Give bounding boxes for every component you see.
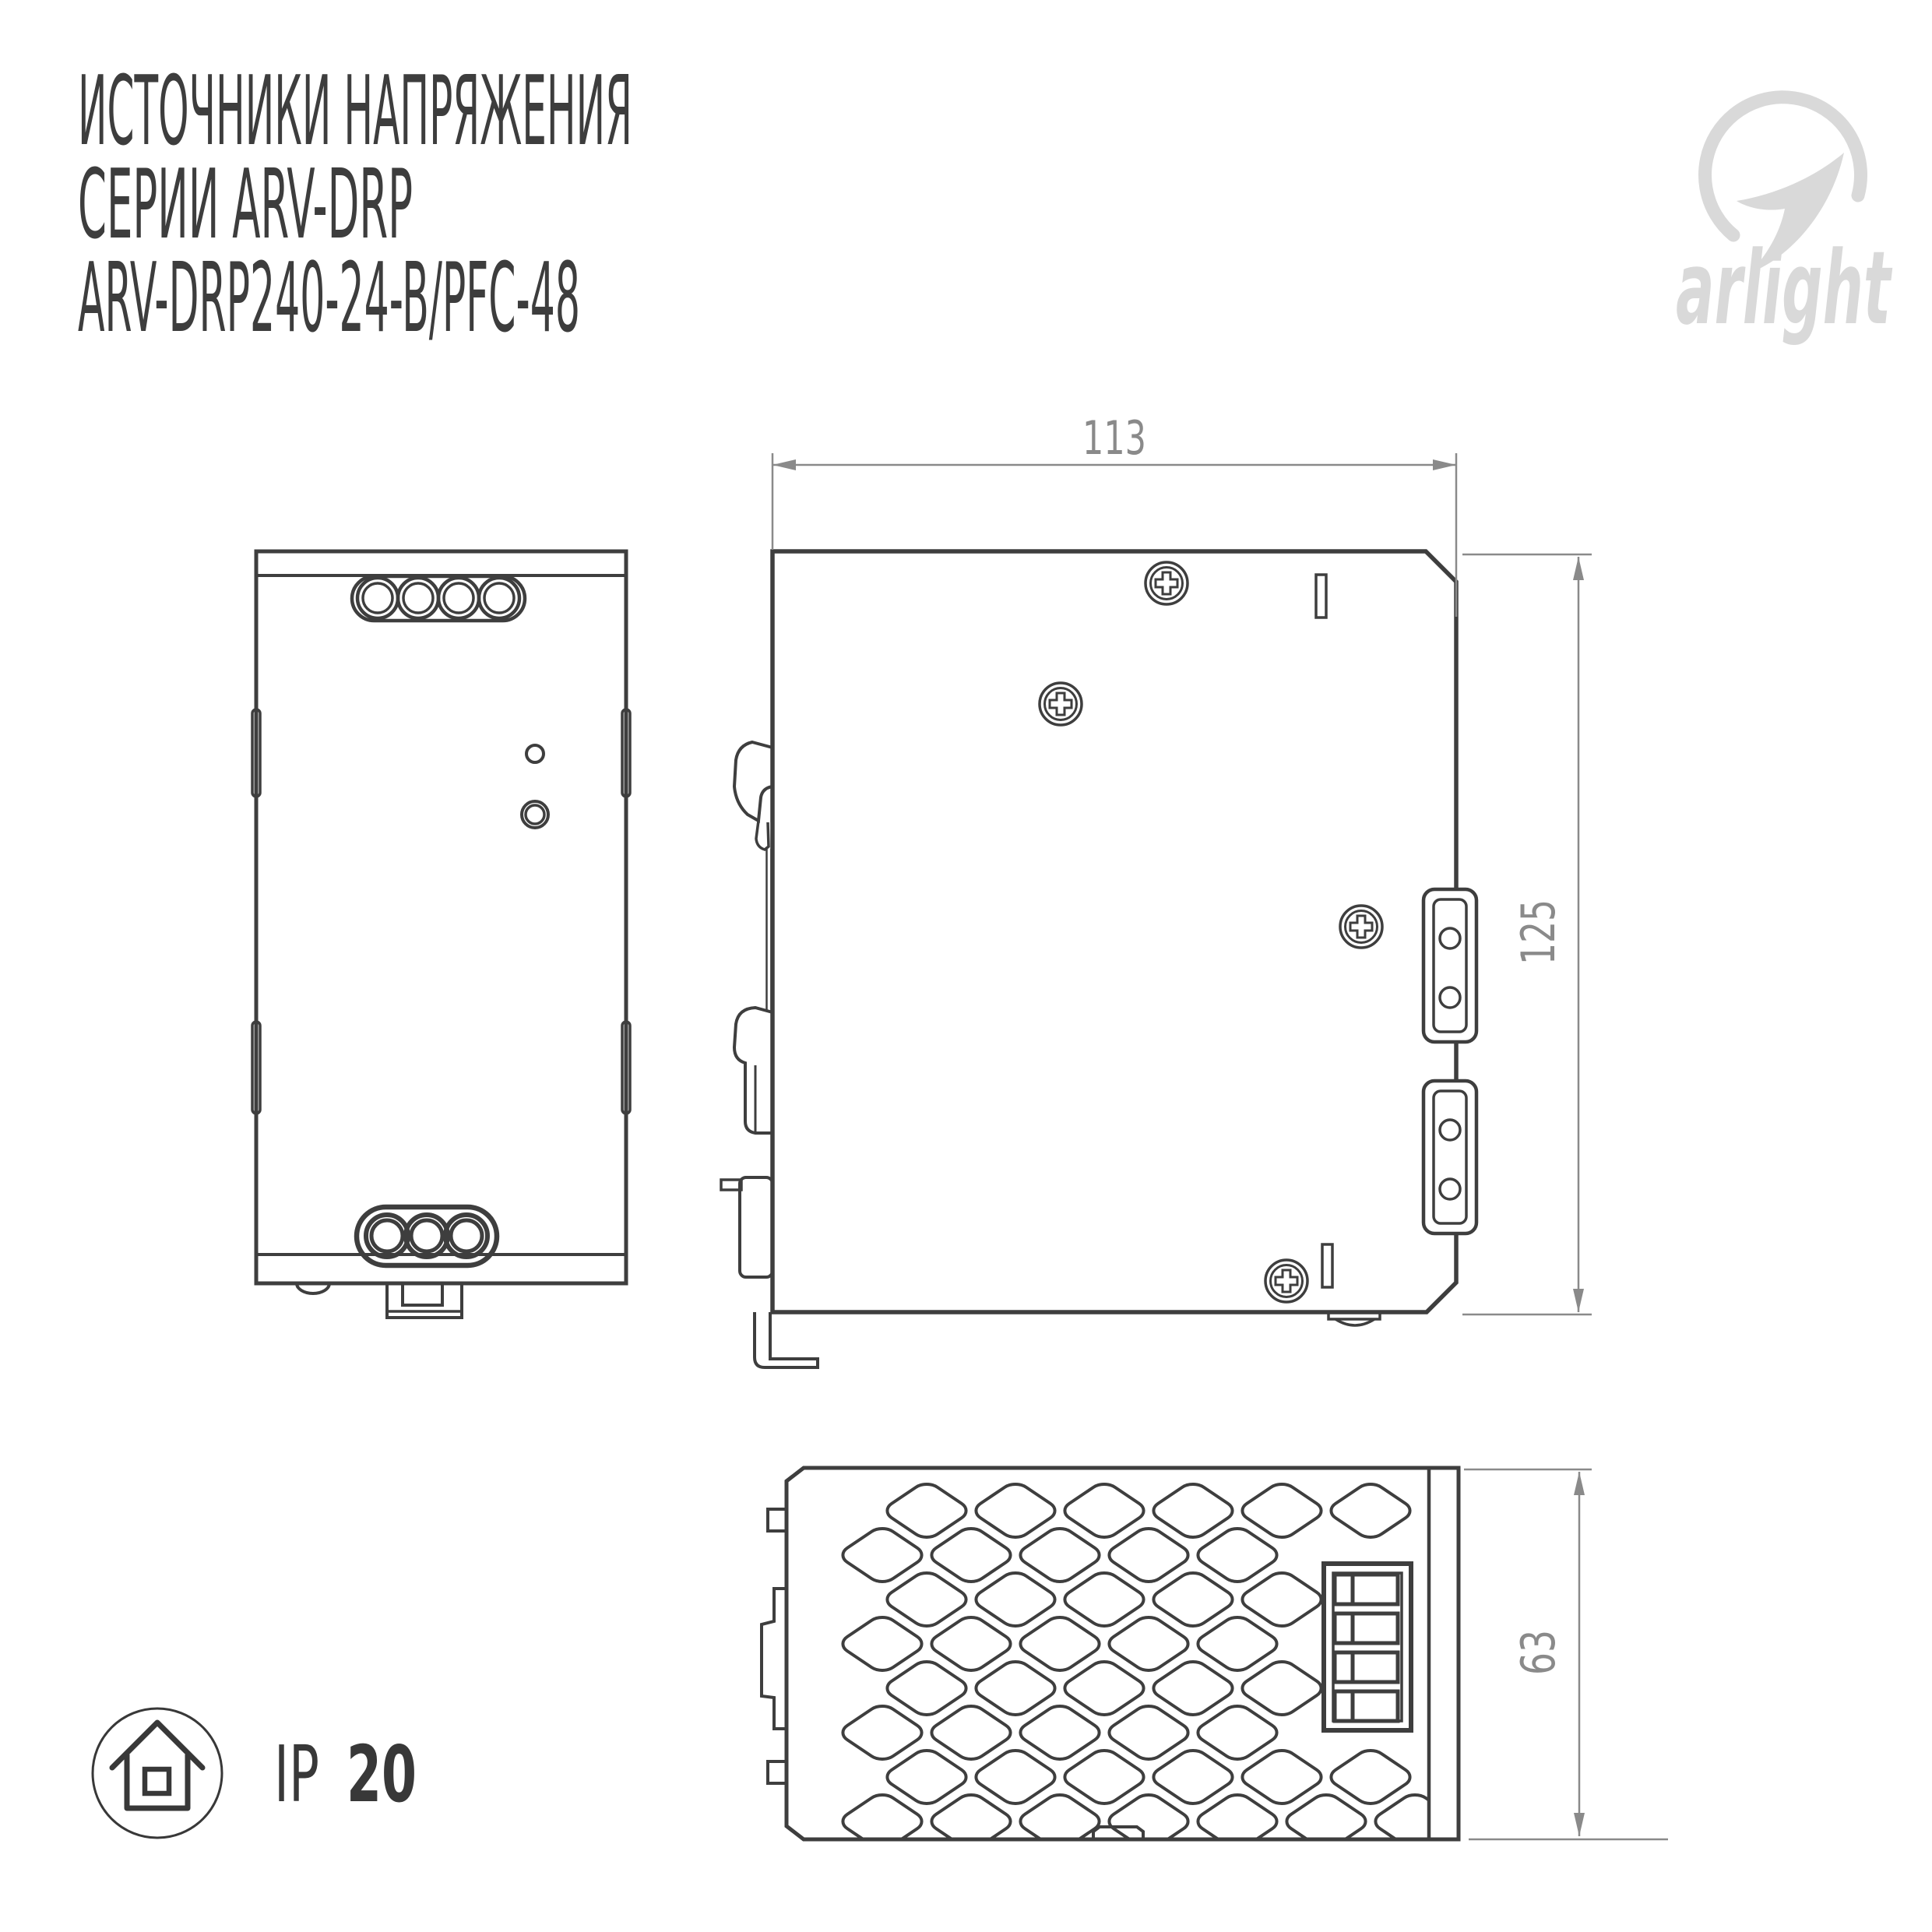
adjust-potentiometer <box>522 801 548 828</box>
din-spring-clip <box>755 1312 818 1367</box>
side-view-drawing <box>721 551 1476 1367</box>
front-body-outline <box>256 551 626 1283</box>
ip-badge-prefix: IP <box>274 1729 319 1820</box>
screw-head <box>1340 906 1382 948</box>
front-view-drawing <box>252 551 630 1318</box>
din-rail-mount <box>721 742 818 1367</box>
connector-tab <box>1423 889 1476 1042</box>
led-indicator <box>526 745 544 762</box>
screw-head <box>1145 562 1188 604</box>
output-terminal-group <box>357 1207 497 1265</box>
bottom-view-drawing <box>762 1468 1461 1852</box>
logo-wordmark: arlight <box>1676 229 1893 347</box>
ip-badge-value: 20 <box>347 1729 417 1820</box>
connector-tab <box>1423 1081 1476 1233</box>
screw-head <box>1265 1260 1307 1302</box>
ip-rating-badge: IP 20 <box>93 1709 417 1838</box>
vent-slot-top <box>1316 575 1326 618</box>
dim-height-label: 125 <box>1511 899 1566 965</box>
screw-head <box>1040 683 1082 725</box>
house-icon <box>93 1709 222 1838</box>
left-mount-tabs <box>762 1509 787 1783</box>
title-block: ИСТОЧНИКИ НАПРЯЖЕНИЯ СЕРИИ ARV-DRP ARV-D… <box>78 56 632 354</box>
technical-drawing-canvas: ИСТОЧНИКИ НАПРЯЖЕНИЯ СЕРИИ ARV-DRP ARV-D… <box>0 0 1932 1932</box>
page-title-line3: ARV-DRP240-24-B/PFC-48 <box>78 243 580 354</box>
side-vent-slots <box>252 709 630 1114</box>
terminal-block <box>1324 1564 1411 1730</box>
input-terminal-group <box>352 576 525 621</box>
dim-depth-label: 63 <box>1511 1630 1566 1675</box>
vent-diamond <box>1325 1480 1416 1542</box>
vent-slot-bottom <box>1322 1244 1332 1287</box>
front-din-clip <box>297 1283 462 1318</box>
dim-width-label: 113 <box>1082 411 1146 466</box>
arlight-logo: arlight <box>1676 97 1893 347</box>
